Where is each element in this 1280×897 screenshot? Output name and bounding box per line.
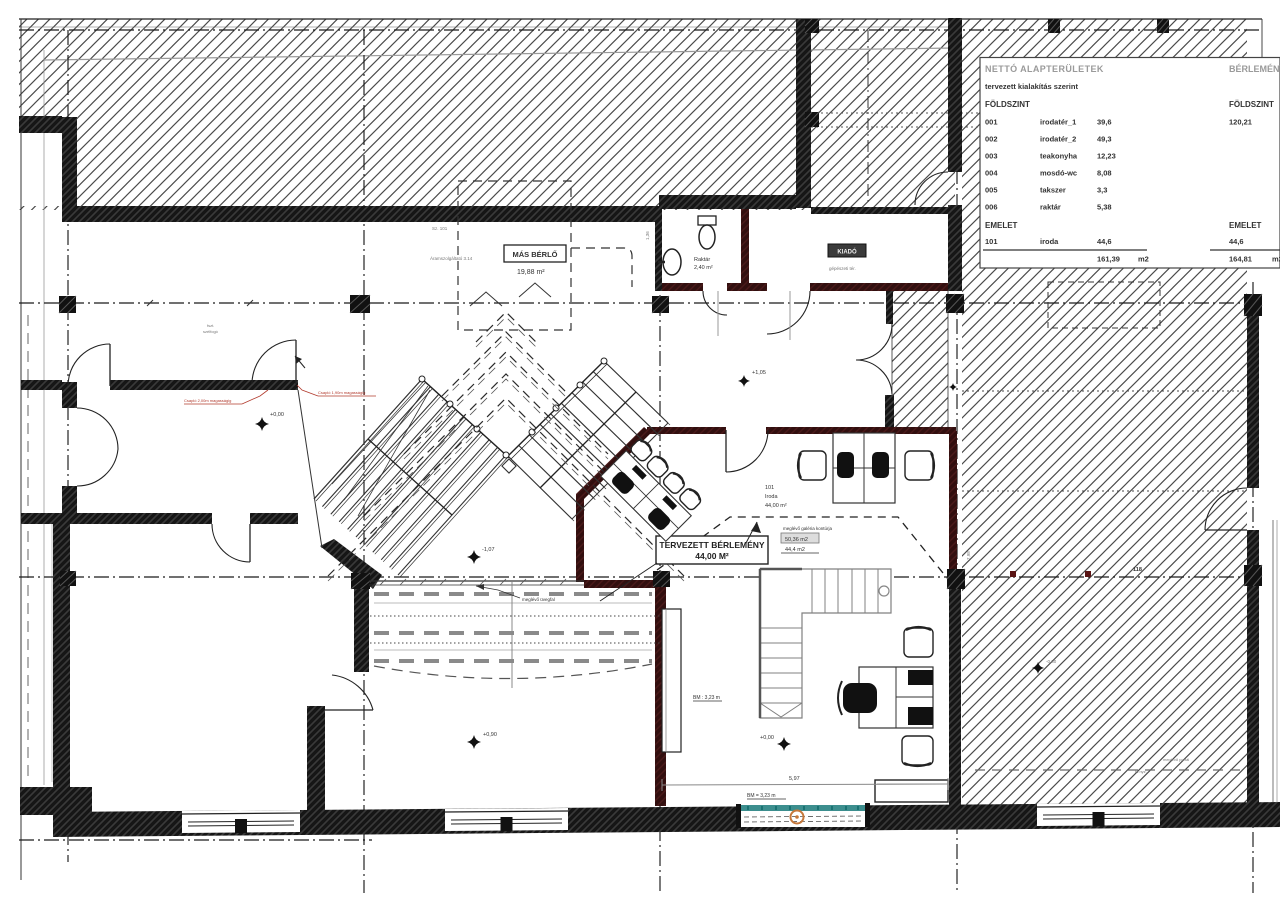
svg-text:7,98: 7,98 [966, 551, 971, 560]
svg-text:Raktár: Raktár [694, 257, 710, 263]
svg-text:006: 006 [985, 203, 998, 212]
svg-text:tervezett kialakítás szerint: tervezett kialakítás szerint [985, 82, 1078, 91]
svg-text:39,6: 39,6 [1097, 118, 1112, 127]
svg-text:BM = 3,23 m: BM = 3,23 m [747, 793, 775, 799]
svg-text:5,97: 5,97 [789, 776, 800, 782]
svg-text:44,00 m²: 44,00 m² [765, 503, 787, 509]
svg-text:-0,60: -0,60 [1046, 659, 1057, 664]
svg-text:Áramszolgáltató 3.14: Áramszolgáltató 3.14 [430, 255, 473, 261]
svg-text:FÖLDSZINT: FÖLDSZINT [1229, 100, 1274, 109]
svg-text:meglévő galéria kontúrja: meglévő galéria kontúrja [783, 526, 833, 531]
svg-text:BÉRLEMÉNY: BÉRLEMÉNY [1229, 64, 1280, 74]
svg-text:Sz. 101: Sz. 101 [432, 226, 448, 231]
svg-text:120,21: 120,21 [1229, 118, 1252, 127]
svg-text:12,23: 12,23 [1097, 152, 1116, 161]
svg-text:003: 003 [985, 152, 998, 161]
svg-text:EMELET: EMELET [985, 221, 1018, 230]
svg-text:fszt.: fszt. [207, 323, 214, 328]
svg-text:KIADÓ: KIADÓ [837, 248, 857, 256]
svg-text:50,36 m2: 50,36 m2 [785, 537, 808, 543]
svg-text:Csapló 1,90m magasságig: Csapló 1,90m magasságig [318, 390, 365, 395]
svg-text:EMELET: EMELET [1229, 221, 1262, 230]
svg-text:m2: m2 [1138, 255, 1149, 264]
svg-text:fa nyz.: fa nyz. [1135, 769, 1147, 774]
svg-text:raktár: raktár [1040, 203, 1061, 212]
svg-text:44,6: 44,6 [1229, 237, 1244, 246]
svg-text:meglévő üvegfal: meglévő üvegfal [522, 597, 555, 602]
svg-text:118: 118 [1133, 567, 1142, 573]
svg-text:FÖLDSZINT: FÖLDSZINT [985, 100, 1030, 109]
svg-text:44,6: 44,6 [1097, 237, 1112, 246]
svg-text:irodatér_1: irodatér_1 [1040, 118, 1076, 127]
svg-text:164,81: 164,81 [1229, 255, 1252, 264]
svg-text:TERVEZETT BÉRLEMÉNY: TERVEZETT BÉRLEMÉNY [659, 540, 764, 550]
svg-text:8,08: 8,08 [1097, 169, 1112, 178]
svg-text:-1,07: -1,07 [482, 547, 495, 553]
svg-text:2,40 m²: 2,40 m² [694, 265, 713, 271]
svg-text:005: 005 [985, 186, 998, 195]
svg-text:szélfogó: szélfogó [203, 329, 219, 334]
svg-text:+0,00: +0,00 [270, 412, 284, 418]
svg-text:44,00 M²: 44,00 M² [695, 551, 729, 561]
svg-text:teakonyha: teakonyha [1040, 152, 1078, 161]
svg-text:Iroda: Iroda [765, 494, 778, 500]
svg-text:101: 101 [765, 485, 774, 491]
svg-text:Csapló 2,00m magasságig: Csapló 2,00m magasságig [184, 398, 231, 403]
svg-text:3,3: 3,3 [1097, 186, 1107, 195]
svg-text:49,3: 49,3 [1097, 135, 1112, 144]
svg-text:MÁS BÉRLŐ: MÁS BÉRLŐ [513, 250, 558, 259]
svg-text:BM : 3,23 m: BM : 3,23 m [693, 695, 720, 701]
svg-text:m2: m2 [1272, 255, 1280, 264]
svg-text:iroda: iroda [1040, 237, 1059, 246]
svg-text:101: 101 [985, 237, 998, 246]
svg-text:irodatér_2: irodatér_2 [1040, 135, 1076, 144]
svg-text:44,4 m2: 44,4 m2 [785, 547, 805, 553]
svg-text:5,38: 5,38 [1097, 203, 1112, 212]
svg-text:+0,00: +0,00 [760, 735, 774, 741]
svg-text:gépészeti tér.: gépészeti tér. [829, 266, 856, 271]
svg-text:meglévő portál: meglévő portál [1163, 757, 1189, 762]
svg-text:+0,90: +0,90 [483, 732, 497, 738]
svg-text:161,39: 161,39 [1097, 255, 1120, 264]
svg-text:19,88 m²: 19,88 m² [517, 269, 545, 276]
svg-text:+1,05: +1,05 [752, 370, 766, 376]
svg-text:NETTÓ ALAPTERÜLETEK: NETTÓ ALAPTERÜLETEK [985, 63, 1104, 74]
svg-text:1,36: 1,36 [645, 231, 650, 240]
svg-text:002: 002 [985, 135, 998, 144]
svg-text:mosdó-wc: mosdó-wc [1040, 169, 1077, 178]
svg-text:004: 004 [985, 169, 998, 178]
svg-text:001: 001 [985, 118, 998, 127]
svg-text:takszer: takszer [1040, 186, 1066, 195]
